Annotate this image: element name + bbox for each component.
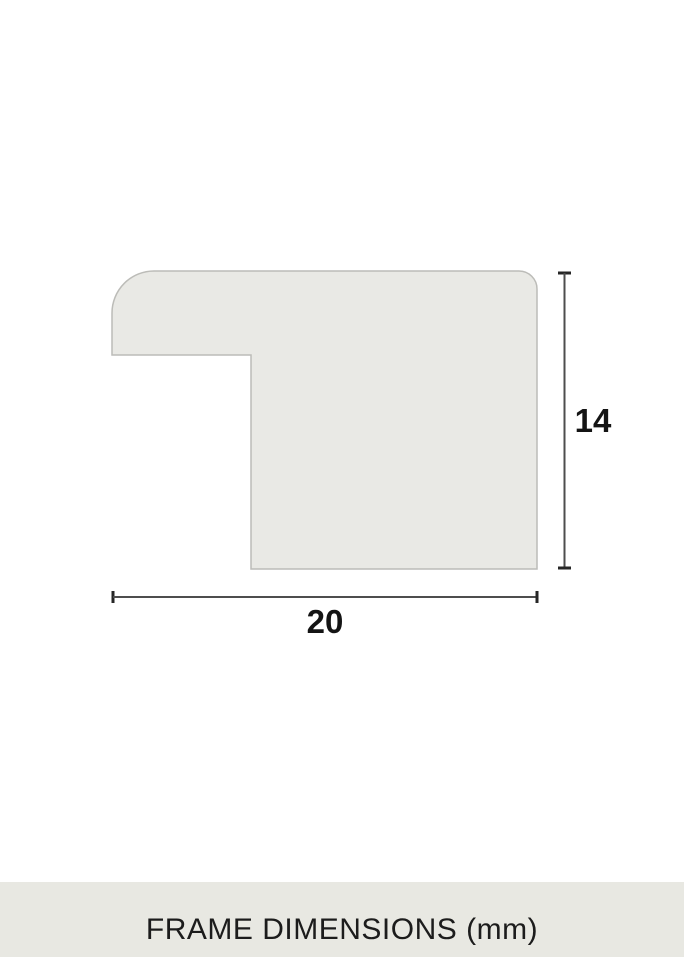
width-dimension: 20 — [113, 591, 537, 640]
height-dimension-label: 14 — [575, 402, 612, 439]
footer-caption: FRAME DIMENSIONS (mm) — [146, 913, 538, 947]
frame-profile-diagram: 14 20 — [0, 0, 684, 882]
footer-bar: FRAME DIMENSIONS (mm) — [0, 882, 684, 957]
frame-profile-shape — [112, 271, 537, 569]
frame-dimensions-page: 14 20 FRAME DIMENSIONS (mm) — [0, 0, 684, 957]
width-dimension-label: 20 — [307, 603, 344, 640]
height-dimension: 14 — [558, 273, 612, 568]
